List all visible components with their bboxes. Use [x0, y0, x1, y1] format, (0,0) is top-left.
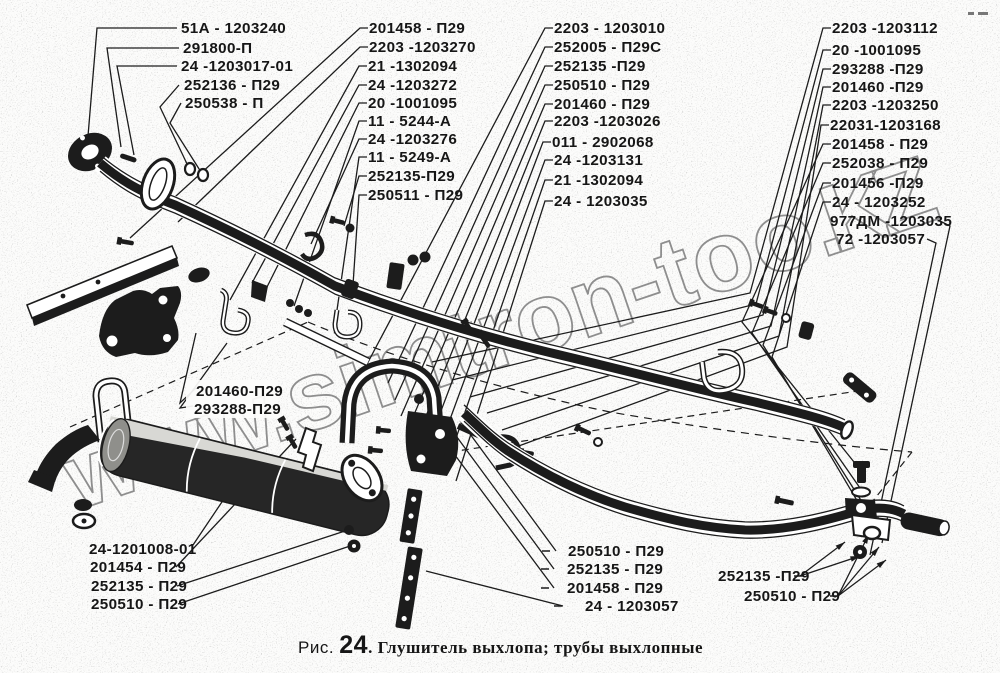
svg-text:250510 - П29: 250510 - П29	[554, 77, 650, 94]
svg-text:291800-П: 291800-П	[183, 40, 252, 57]
svg-text:2203 -1203250: 2203 -1203250	[832, 97, 939, 114]
svg-text:24 -1203276: 24 -1203276	[368, 131, 457, 148]
svg-text:2203 -1203270: 2203 -1203270	[369, 39, 476, 56]
svg-text:22031-1203168: 22031-1203168	[830, 117, 941, 134]
svg-text:977ДМ -1203035: 977ДМ -1203035	[830, 213, 952, 230]
svg-text:293288 -П29: 293288 -П29	[832, 61, 924, 78]
svg-text:21 -1302094: 21 -1302094	[368, 58, 457, 75]
svg-text:11 - 5249-А: 11 - 5249-А	[368, 149, 451, 166]
svg-text:252136 - П29: 252136 - П29	[184, 77, 280, 94]
svg-text:201454 - П29: 201454 - П29	[90, 559, 186, 576]
svg-text:250510 - П29: 250510 - П29	[568, 543, 664, 560]
svg-text:201460 - П29: 201460 - П29	[554, 96, 650, 113]
svg-text:252038 - П29: 252038 - П29	[832, 155, 928, 172]
svg-text:252135 -П29: 252135 -П29	[554, 58, 646, 75]
svg-text:24 -1203272: 24 -1203272	[368, 77, 457, 94]
svg-text:250510 - П29: 250510 - П29	[91, 596, 187, 613]
svg-text:201458 - П29: 201458 - П29	[567, 580, 663, 597]
svg-text:72 -1203057: 72 -1203057	[836, 231, 925, 248]
svg-text:21 -1302094: 21 -1302094	[554, 172, 643, 189]
svg-text:24 -1203017-01: 24 -1203017-01	[181, 58, 293, 75]
svg-text:252135 - П29: 252135 - П29	[567, 561, 663, 578]
svg-text:201456 -П29: 201456 -П29	[832, 175, 924, 192]
svg-text:201460-П29: 201460-П29	[196, 383, 283, 400]
svg-text:24 - 1203035: 24 - 1203035	[554, 193, 648, 210]
svg-text:24 - 1203057: 24 - 1203057	[585, 598, 679, 615]
svg-text:2203 -1203026: 2203 -1203026	[554, 113, 661, 130]
svg-text:250510 - П29: 250510 - П29	[744, 588, 840, 605]
svg-text:011 - 2902068: 011 - 2902068	[552, 134, 654, 151]
svg-text:252005 - П29С: 252005 - П29С	[554, 39, 662, 56]
svg-text:293288-П29: 293288-П29	[194, 401, 281, 418]
svg-text:201458 - П29: 201458 - П29	[832, 136, 928, 153]
svg-text:20 -1001095: 20 -1001095	[832, 42, 921, 59]
svg-text:51А - 1203240: 51А - 1203240	[181, 20, 286, 37]
svg-text:201460 -П29: 201460 -П29	[832, 79, 924, 96]
svg-text:201458 - П29: 201458 - П29	[369, 20, 465, 37]
svg-text:20 -1001095: 20 -1001095	[368, 95, 457, 112]
svg-text:2203 - 1203010: 2203 - 1203010	[554, 20, 665, 37]
svg-text:250538 - П: 250538 - П	[185, 95, 264, 112]
svg-text:11 - 5244-А: 11 - 5244-А	[368, 113, 451, 130]
svg-text:252135 - П29: 252135 - П29	[91, 578, 187, 595]
svg-text:24 - 1203252: 24 - 1203252	[832, 194, 926, 211]
svg-text:252135-П29: 252135-П29	[368, 168, 455, 185]
svg-text:24 -1203131: 24 -1203131	[554, 152, 643, 169]
svg-text:250511 - П29: 250511 - П29	[368, 187, 463, 204]
svg-text:24-1201008-01: 24-1201008-01	[89, 541, 197, 558]
svg-text:2203 -1203112: 2203 -1203112	[832, 20, 938, 37]
